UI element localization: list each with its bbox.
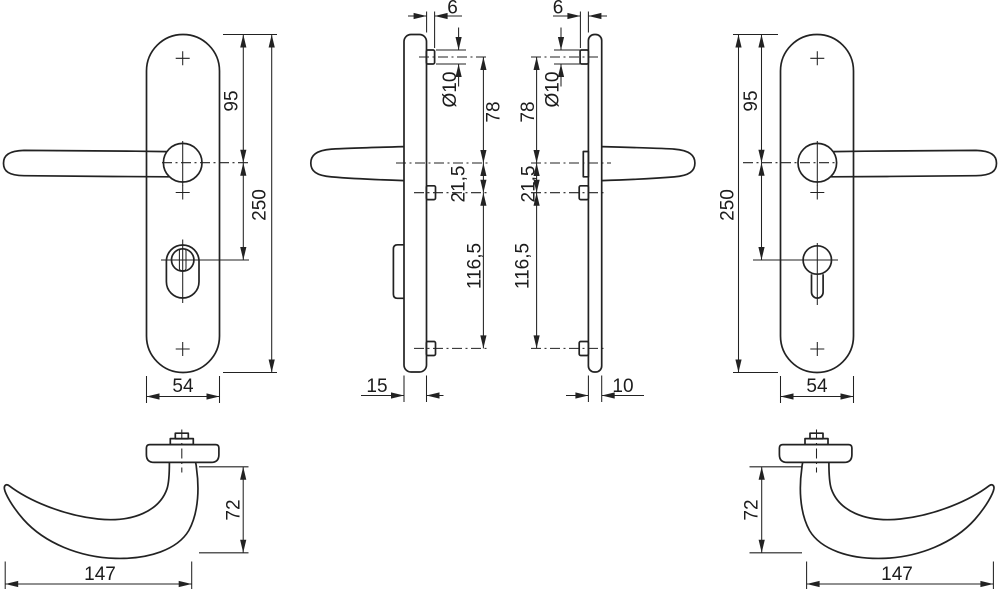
- lever-handle: [4, 150, 170, 176]
- dim-label-116-5: 116,5: [513, 243, 534, 289]
- rose-plate: [146, 445, 219, 463]
- dim-label-95: 95: [741, 90, 762, 111]
- dim-label-6: 6: [447, 0, 458, 19]
- dim-label-72: 72: [224, 499, 245, 520]
- screw-center-mark: [810, 186, 824, 200]
- dim-label-21-5: 21,5: [518, 166, 539, 203]
- dim-label-147: 147: [881, 564, 913, 585]
- dim-label-21-5: 21,5: [449, 166, 470, 203]
- lever-top-view-right: 72 147: [741, 430, 994, 589]
- dim-label-95: 95: [222, 90, 243, 111]
- dim-label-10: 10: [612, 376, 633, 397]
- lever-artwork-mirrored: [779, 430, 994, 559]
- dim-label-72: 72: [741, 499, 762, 520]
- dim-label-15: 15: [366, 376, 387, 397]
- screw-center-mark: [176, 186, 190, 200]
- lever-top-view-left: 72 147: [4, 430, 248, 589]
- front-view-exterior-plate: 95 250 54: [4, 35, 278, 404]
- dim-label-147: 147: [84, 564, 116, 585]
- dim-label-6: 6: [553, 0, 564, 19]
- dim-label-d10: Ø10: [440, 72, 461, 108]
- lever-handle-profile: [311, 147, 404, 181]
- screw-center-mark: [176, 51, 190, 65]
- dim-label-78: 78: [518, 101, 539, 122]
- lever-artwork: [4, 430, 219, 559]
- screw-center-mark: [810, 342, 824, 356]
- dim-label-54: 54: [172, 376, 194, 397]
- side-view-exterior-plate: 6 Ø10 78 21,5 116,5 15: [311, 0, 505, 402]
- technical-drawing-page: 95 250 54 6 Ø10 78 21,5 116: [0, 0, 1000, 589]
- dim-label-116-5: 116,5: [465, 243, 486, 289]
- door-handle-technical-drawing: 95 250 54 6 Ø10 78 21,5 116: [0, 0, 1000, 589]
- lever-handle: [831, 150, 997, 176]
- dim-label-78: 78: [483, 101, 504, 122]
- dim-label-250: 250: [718, 189, 739, 221]
- backplate-profile: [588, 35, 601, 373]
- backplate-outline: [781, 35, 854, 373]
- lever-grip-outline: [4, 462, 198, 558]
- screw-center-mark: [176, 342, 190, 356]
- dim-label-250: 250: [250, 189, 271, 221]
- lever-handle-profile: [602, 147, 695, 181]
- screw-center-mark: [810, 51, 824, 65]
- backplate-profile: [404, 35, 427, 373]
- dim-label-54: 54: [806, 376, 828, 397]
- backplate-outline: [147, 35, 220, 373]
- side-view-interior-plate: 6 Ø10 78 21,5 116,5 10: [513, 0, 695, 402]
- spindle-bearing-stub: [583, 152, 588, 177]
- front-view-interior-plate: 95 250 54: [718, 35, 997, 404]
- cylinder-housing-bump: [393, 245, 404, 298]
- dim-label-d10: Ø10: [542, 72, 563, 108]
